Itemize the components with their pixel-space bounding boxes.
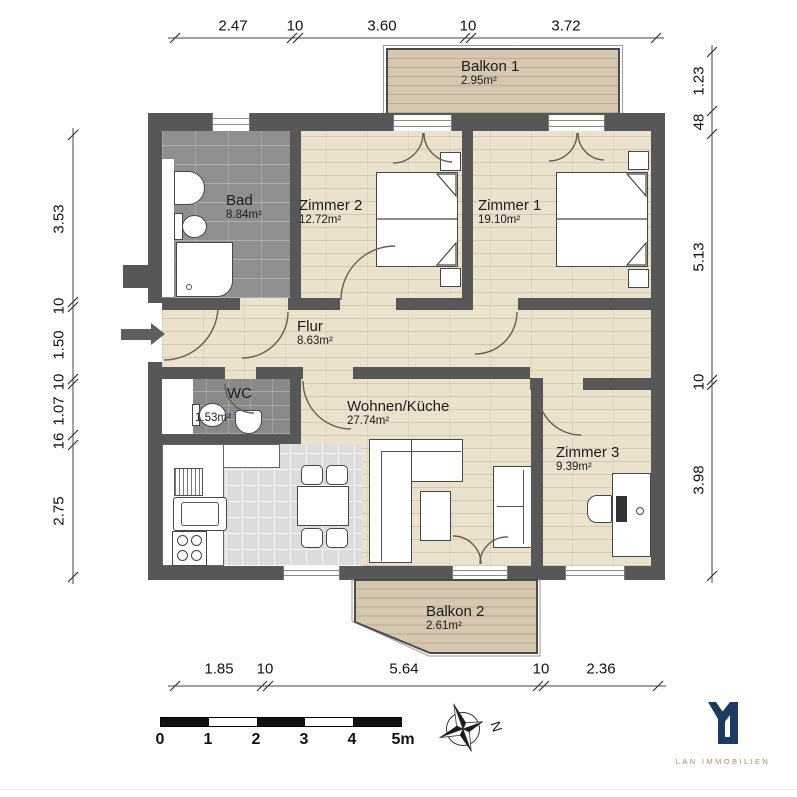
scale-segment [305,718,353,726]
logo-text: LAN IMMOBILIEN [663,757,783,766]
scale-num-5: 5m [391,731,414,749]
agency-logo: LAN IMMOBILIEN [663,700,783,766]
room-label-wohnen-kueche: Wohnen/Küche 27.74m² [347,398,449,428]
scale-num-0: 0 [156,731,165,749]
dim-right-0: 1.23 [691,66,708,95]
dim-right-3: 10 [691,374,708,391]
dim-left-1: 10 [51,298,68,315]
scale-num-3: 3 [300,731,309,749]
floor-plan-canvas: N Balkon 1 2.95m² Bad 8.84m² Zimmer 2 12… [0,0,797,797]
scale-num-1: 1 [204,731,213,749]
dim-left-3: 10 [51,374,68,391]
scale-num-4: 4 [348,731,357,749]
room-area-wc: 1.53m² [195,412,231,425]
logo-monogram-icon [705,700,741,746]
room-label-zimmer2: Zimmer 2 12.72m² [299,197,362,227]
scale-bar [160,717,402,727]
dim-left-5: 16 [51,433,68,450]
scale-num-2: 2 [252,731,261,749]
scale-segment [209,718,257,726]
dim-left-4: 1.07 [51,396,68,425]
dim-top-1: 10 [287,18,304,35]
dim-left-6: 2.75 [51,496,68,525]
dim-bottom-2: 5.64 [389,661,418,678]
room-label-bad: Bad 8.84m² [226,192,262,222]
room-label-balkon2: Balkon 2 2.61m² [426,603,484,633]
dim-right-4: 3.98 [691,465,708,494]
dim-bottom-3: 10 [533,661,550,678]
dim-top-4: 3.72 [551,18,580,35]
dim-bottom-4: 2.36 [586,661,615,678]
room-label-zimmer1: Zimmer 1 19.10m² [478,197,541,227]
dim-right-2: 5.13 [691,242,708,271]
dim-top-2: 3.60 [367,18,396,35]
dim-bottom-1: 10 [257,661,274,678]
compass-north-label: N [487,719,505,734]
dim-top-0: 2.47 [218,18,247,35]
dim-top-3: 10 [460,18,477,35]
room-label-wc: WC [227,385,252,402]
scale-segment [257,718,305,726]
room-label-balkon1: Balkon 1 2.95m² [461,58,519,88]
room-label-zimmer3: Zimmer 3 9.39m² [556,444,619,474]
dim-right-1: 48 [691,114,708,131]
entry-arrow-head-icon [151,323,165,345]
compass-icon: N [430,696,505,760]
scale-segment [161,718,209,726]
entry-arrow-icon [121,329,151,340]
dim-left-0: 3.53 [51,204,68,233]
dim-left-2: 1.50 [51,330,68,359]
dim-bottom-0: 1.85 [204,661,233,678]
room-label-flur: Flur 8.63m² [297,318,333,348]
scale-segment [353,718,401,726]
